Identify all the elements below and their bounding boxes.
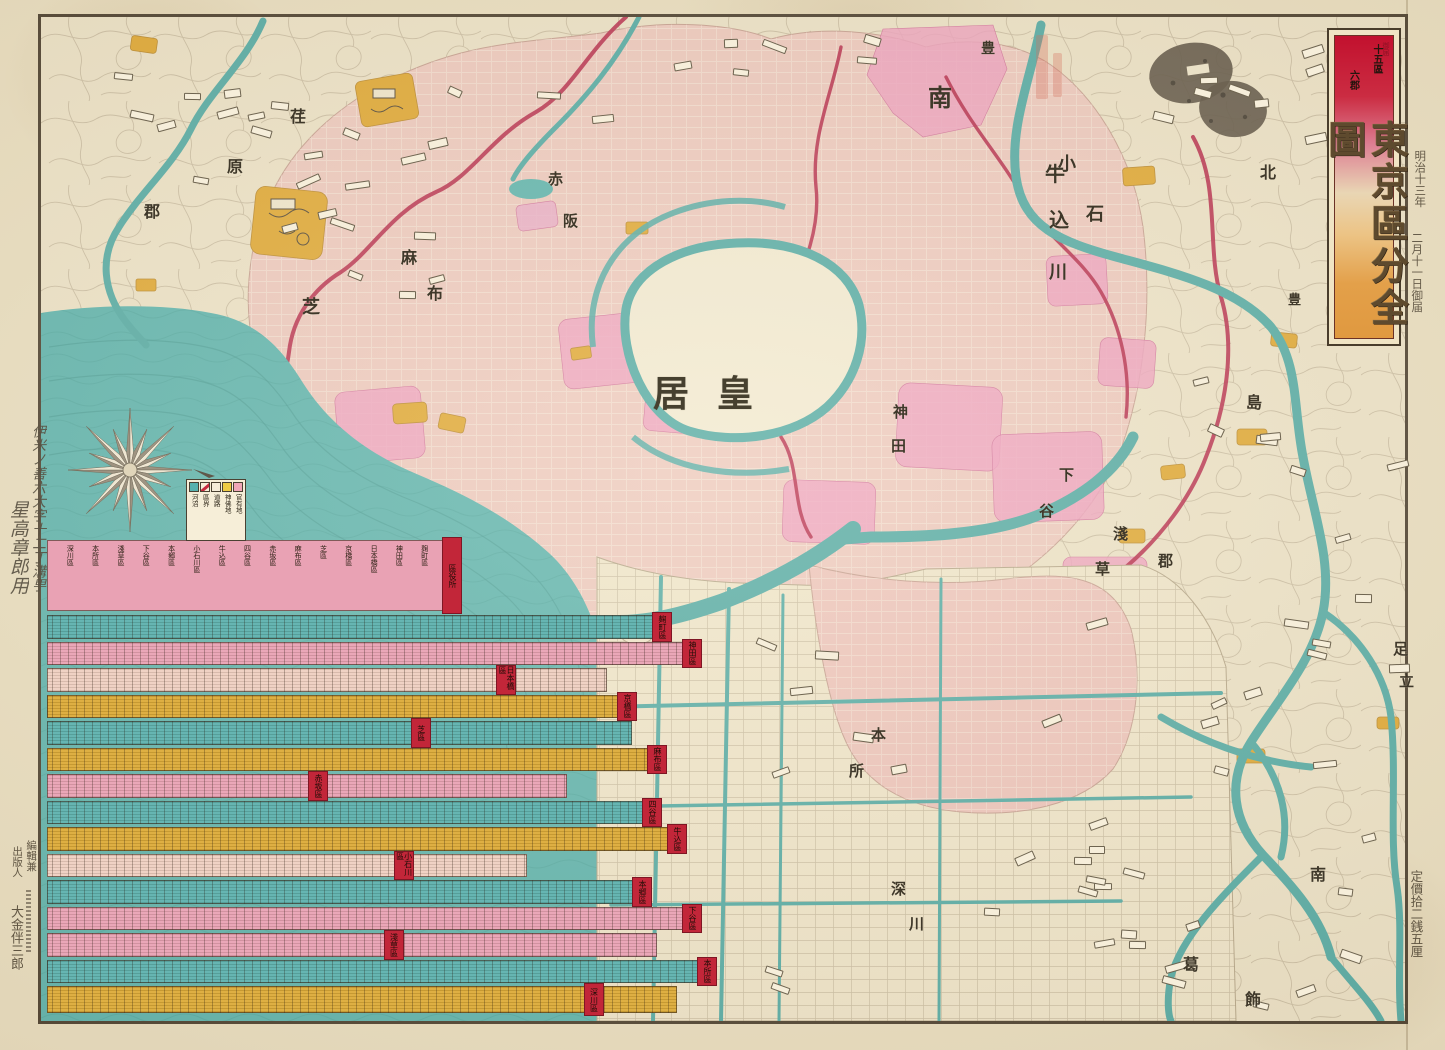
publisher-role-line2: 出版人: [10, 846, 22, 878]
map-sheet: 南豊牛込小石川神田芝麻布赤阪下谷淺草本所深川荏原郡北豊島郡足立南葛飾 皇居 官有…: [0, 0, 1445, 1050]
title-cartouche: 十五區 六郡 御届 東京區分全圖: [1327, 28, 1401, 346]
price-note: 定價拾二銭五厘: [1408, 870, 1422, 958]
legend-swatch: [211, 482, 221, 492]
compass-center: [123, 463, 137, 477]
legend-swatch: [200, 482, 210, 492]
palace-label: 皇居: [653, 365, 781, 417]
legend: 官有地神佛地道路區界河沼: [186, 479, 246, 541]
legend-swatch: [189, 482, 199, 492]
date-note-line2: 二月十一日御届: [1409, 232, 1422, 313]
legend-label: 河沼: [191, 494, 198, 507]
title-side-note: 御届: [1381, 42, 1391, 56]
title-cartouche-panel: 十五區 六郡 御届 東京區分全圖: [1334, 35, 1394, 339]
legend-label: 道路: [213, 494, 220, 507]
publisher-address-small-text: [26, 888, 31, 952]
legend-swatch: [233, 482, 243, 492]
legend-label: 神佛地: [224, 494, 231, 514]
legend-item: 道路: [211, 482, 221, 538]
legend-swatch: [222, 482, 232, 492]
date-note-line1: 明治十三年: [1412, 150, 1425, 208]
legend-item: 官有地: [233, 482, 243, 538]
owner-inscription-line1: 伊米ノ善六大字十二丁溝甼: [30, 424, 46, 754]
legend-label: 區界: [202, 494, 209, 507]
title-note-wards: 十五區: [1371, 44, 1382, 74]
main-title: 東京區分全圖: [1321, 120, 1406, 338]
legend-item: 區界: [200, 482, 210, 538]
map-frame: 南豊牛込小石川神田芝麻布赤阪下谷淺草本所深川荏原郡北豊島郡足立南葛飾 皇居 官有…: [38, 14, 1408, 1024]
legend-item: 河沼: [189, 482, 199, 538]
fukagawa-honjo-land: [597, 557, 1236, 1021]
title-note-districts: 六郡: [1347, 70, 1358, 90]
publisher-role-line1: 編輯兼: [24, 840, 36, 872]
legend-item: 神佛地: [222, 482, 232, 538]
publisher-name: 大金伴三郎: [8, 905, 23, 970]
owner-inscription-line2: 星高章郎用: [6, 500, 28, 760]
legend-label: 官有地: [235, 494, 242, 514]
